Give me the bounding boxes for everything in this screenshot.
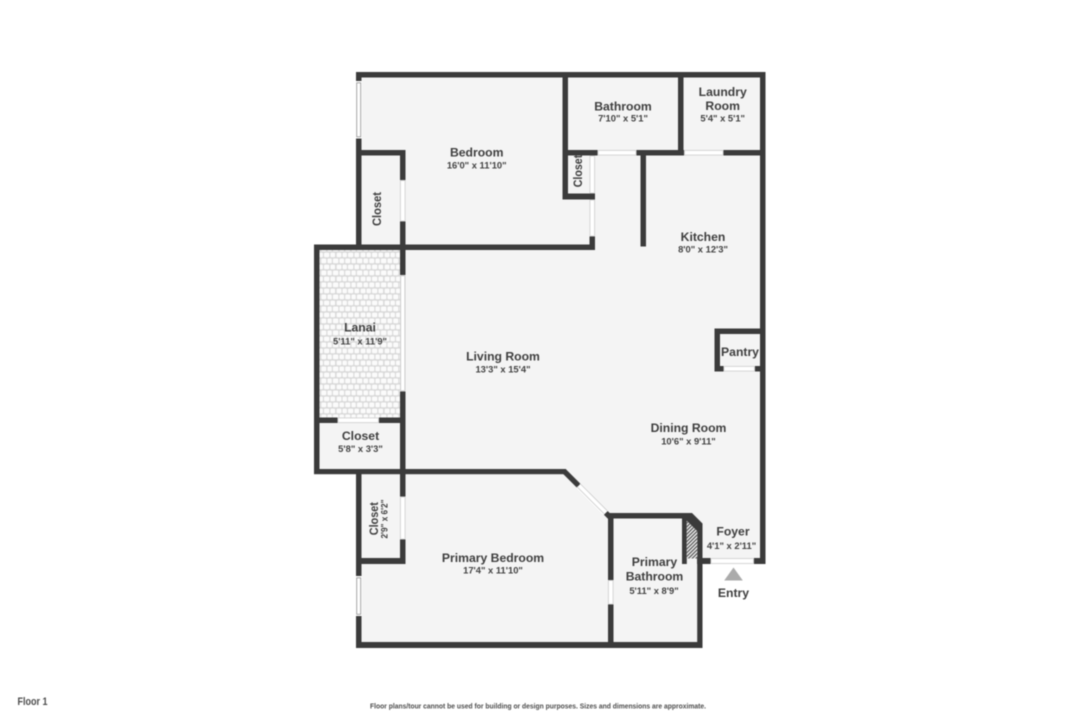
- svg-text:Bedroom: Bedroom: [450, 145, 504, 159]
- svg-text:17'4" x 11'10": 17'4" x 11'10": [463, 564, 523, 575]
- svg-text:5'8" x 3'3": 5'8" x 3'3": [338, 443, 383, 454]
- svg-text:5'4" x 5'1": 5'4" x 5'1": [700, 112, 745, 123]
- svg-text:Lanai: Lanai: [344, 320, 376, 334]
- svg-text:5'11" x 11'9": 5'11" x 11'9": [333, 335, 387, 346]
- svg-text:13'3" x 15'4": 13'3" x 15'4": [475, 363, 530, 374]
- svg-text:4'1" x 2'11": 4'1" x 2'11": [707, 540, 756, 551]
- svg-text:10'6" x 9'11": 10'6" x 9'11": [661, 435, 716, 446]
- svg-text:5'11" x 8'9": 5'11" x 8'9": [629, 585, 678, 596]
- svg-text:Pantry: Pantry: [721, 345, 759, 359]
- svg-text:Closet: Closet: [342, 429, 379, 443]
- svg-text:Primary Bedroom: Primary Bedroom: [442, 551, 544, 565]
- svg-text:8'0" x 12'3": 8'0" x 12'3": [678, 243, 728, 254]
- svg-text:Foyer: Foyer: [716, 524, 749, 538]
- svg-text:Closet: Closet: [370, 192, 384, 226]
- svg-text:Primary: Primary: [632, 555, 678, 569]
- svg-text:Entry: Entry: [718, 586, 749, 600]
- svg-text:Bathroom: Bathroom: [594, 99, 652, 113]
- svg-text:Bathroom: Bathroom: [626, 569, 684, 583]
- svg-text:Laundry: Laundry: [699, 85, 747, 99]
- svg-text:16'0" x 11'10": 16'0" x 11'10": [447, 159, 507, 170]
- svg-text:Closet: Closet: [573, 155, 585, 188]
- svg-text:Living Room: Living Room: [466, 349, 540, 363]
- svg-text:Room: Room: [705, 99, 740, 113]
- svg-text:Kitchen: Kitchen: [681, 230, 726, 244]
- svg-text:Floor 1: Floor 1: [18, 696, 48, 708]
- svg-text:Floor plans/tour cannot be use: Floor plans/tour cannot be used for buil…: [370, 702, 706, 711]
- svg-text:Dining Room: Dining Room: [651, 421, 727, 435]
- svg-text:2'9" x 6'2": 2'9" x 6'2": [379, 500, 390, 539]
- svg-text:7'10" x 5'1": 7'10" x 5'1": [598, 112, 648, 123]
